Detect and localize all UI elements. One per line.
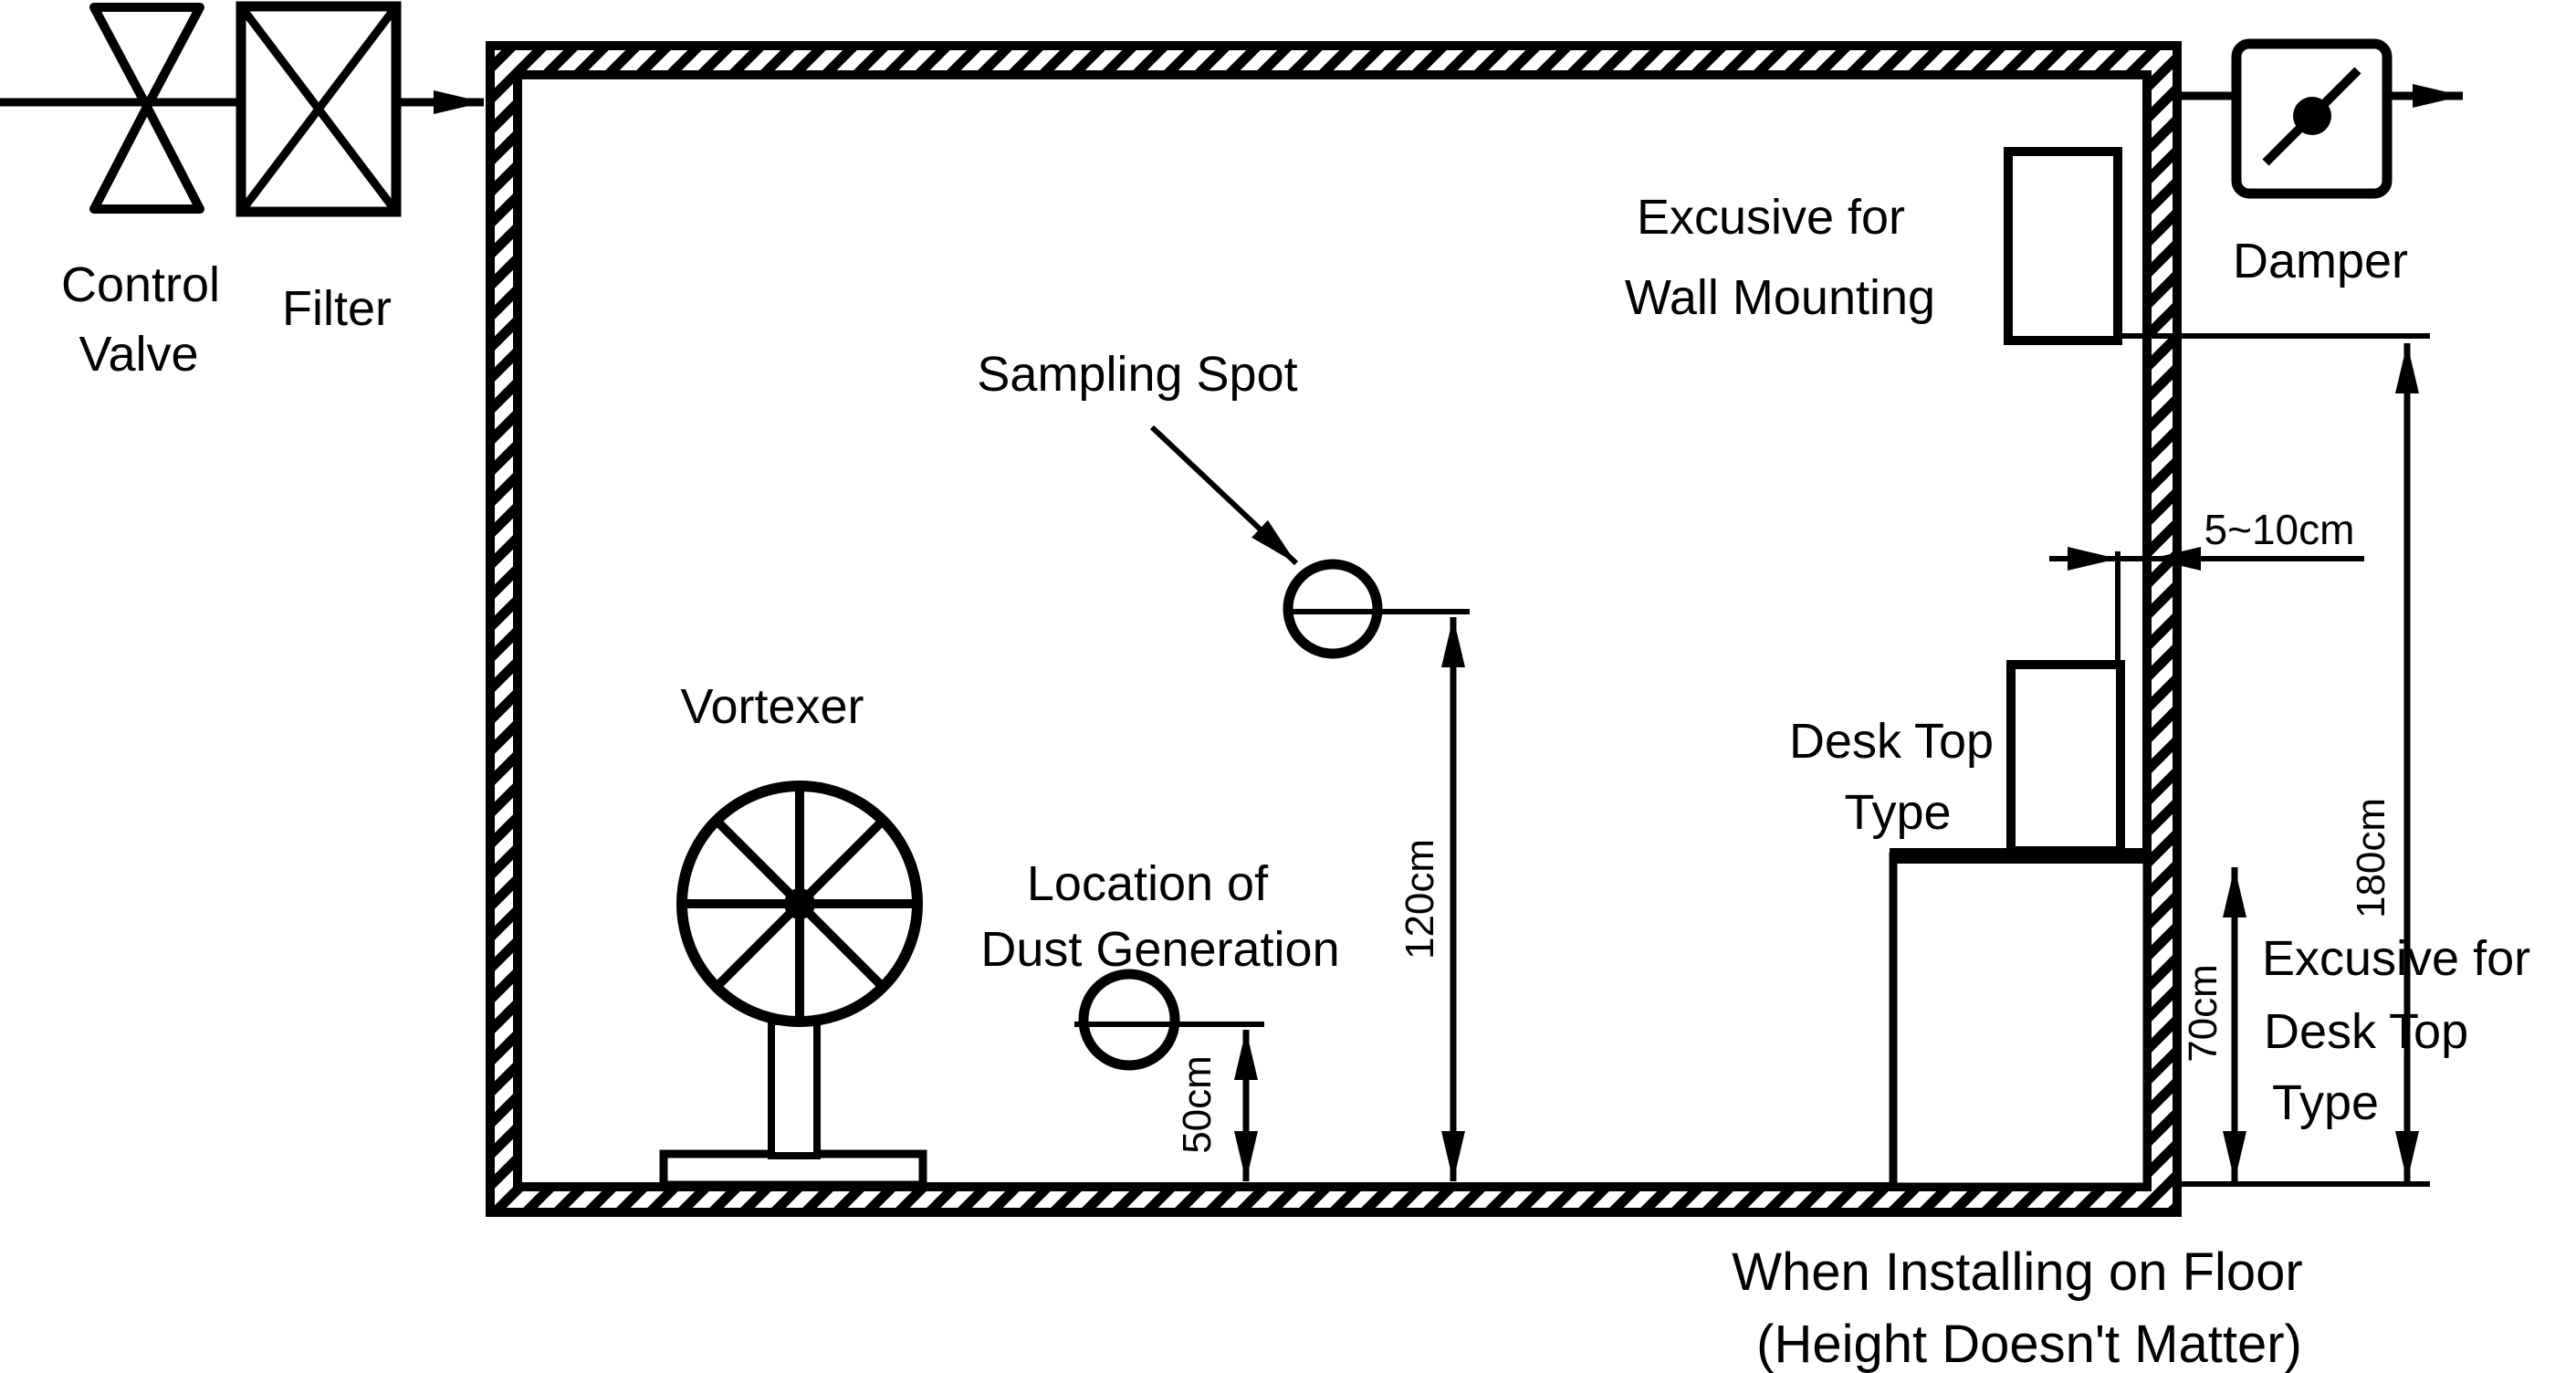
footer-line1: When Installing on Floor xyxy=(1732,1242,2302,1302)
vortexer-label: Vortexer xyxy=(680,679,864,734)
gap-label: 5~10cm xyxy=(2204,506,2355,553)
footer-note: When Installing on Floor (Height Doesn't… xyxy=(1732,1242,2302,1373)
dimension-120cm: 120cm xyxy=(1398,617,1453,1181)
dimension-gap: 5~10cm xyxy=(2049,506,2364,663)
vortexer-hub xyxy=(784,888,815,919)
dimension-50cm-label: 50cm xyxy=(1175,1055,1220,1154)
control-valve-label-line2: Valve xyxy=(79,327,198,382)
dust-circle xyxy=(1084,974,1175,1065)
wall-mount-label-line2: Wall Mounting xyxy=(1625,270,1935,325)
desk-top-label-line1: Desk Top xyxy=(1789,714,1994,769)
vortexer-column xyxy=(771,1022,817,1156)
wall-mount-unit: Excusive for Wall Mounting xyxy=(1625,152,2118,341)
control-valve-label-line1: Control xyxy=(61,257,220,312)
inlet-assembly: Control Valve Filter xyxy=(0,6,484,382)
wall-mount-box xyxy=(2008,152,2118,341)
footer-line2: (Height Doesn't Matter) xyxy=(1756,1315,2302,1373)
desk-excusive-line1: Excusive for xyxy=(2262,931,2530,986)
desk-excusive-note: Excusive for Desk Top Type xyxy=(2262,931,2530,1130)
control-valve-icon xyxy=(94,7,200,209)
desk-top-unit-box xyxy=(2011,665,2120,851)
desk-excusive-line3: Type xyxy=(2272,1075,2379,1130)
dimension-70cm: 70cm xyxy=(2181,867,2235,1181)
sampling-spot: Sampling Spot xyxy=(977,347,1470,654)
dimension-120cm-label: 120cm xyxy=(1398,839,1442,959)
dust-label-line1: Location of xyxy=(1027,856,1269,911)
dust-label-line2: Dust Generation xyxy=(980,922,1339,977)
diagram-canvas: Control Valve Filter Sampling Spot 120cm… xyxy=(0,0,2576,1373)
filter-label: Filter xyxy=(282,281,392,336)
vortexer-icon: Vortexer xyxy=(664,679,923,1185)
dimension-50cm: 50cm xyxy=(1175,1030,1246,1181)
damper-pivot xyxy=(2293,97,2331,135)
test-chamber-diagram: Control Valve Filter Sampling Spot 120cm… xyxy=(0,0,2576,1373)
desk-top-label-line2: Type xyxy=(1844,785,1951,840)
dust-generation: Location of Dust Generation xyxy=(980,856,1339,1065)
desk-body xyxy=(1893,856,2147,1187)
sampling-spot-label: Sampling Spot xyxy=(977,347,1297,402)
damper-label: Damper xyxy=(2233,234,2408,288)
desk-assembly: Desk Top Type xyxy=(1789,665,2147,1187)
sampling-leader-arrow xyxy=(1152,427,1296,563)
wall-mount-label-line1: Excusive for xyxy=(1637,190,1905,245)
damper-assembly: Damper xyxy=(2177,44,2463,288)
dimension-180cm-label: 180cm xyxy=(2349,798,2393,918)
filter-icon xyxy=(241,6,396,212)
dimension-70cm-label: 70cm xyxy=(2181,964,2225,1063)
desk-excusive-line2: Desk Top xyxy=(2264,1004,2468,1059)
